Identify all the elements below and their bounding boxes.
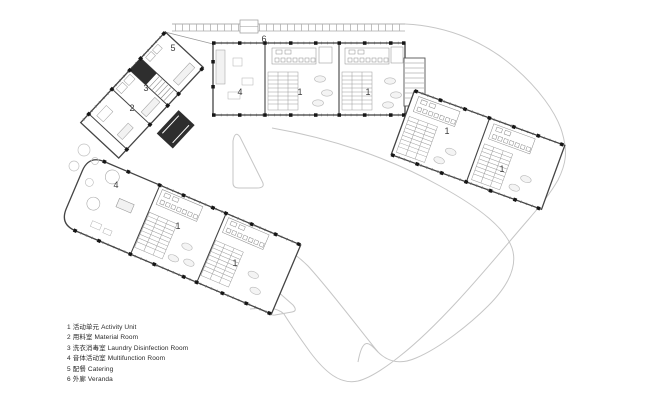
legend-item-material-room: 2用料室Material Room <box>67 333 190 343</box>
legend-en: Veranda <box>88 376 113 383</box>
legend-num: 6 <box>67 376 71 383</box>
room-label-unit-top-2: 1 <box>365 87 370 97</box>
legend-en: Activity Unit <box>101 324 136 331</box>
legend-zh: 用料室 <box>73 334 93 341</box>
room-label-veranda: 6 <box>261 34 266 44</box>
legend-zh: 洗衣消毒室 <box>73 345 106 352</box>
room-label-unit-bottom-2: 1 <box>232 258 237 268</box>
floor-plan-figure: 5 3 2 4 1 1 6 1 1 4 1 1 1活动单元Activity Un… <box>0 0 650 410</box>
legend-en: Laundry Disinfection Room <box>108 345 189 352</box>
room-label-multifunction-top: 4 <box>237 87 242 97</box>
legend-en: Multifunction Room <box>108 355 165 362</box>
wing-bottomleft <box>59 154 301 316</box>
room-label-multifunction-bottom: 4 <box>113 180 118 190</box>
legend-en: Catering <box>88 366 113 373</box>
legend-en: Material Room <box>95 334 139 341</box>
room-label-laundry: 3 <box>143 83 148 93</box>
wing-top <box>211 41 405 117</box>
legend-num: 3 <box>67 345 71 352</box>
legend-item-veranda: 6外廊Veranda <box>67 375 190 385</box>
path-island-west <box>233 134 263 188</box>
legend-item-laundry: 3洗衣消毒室Laundry Disinfection Room <box>67 344 190 354</box>
legend-zh: 音体活动室 <box>73 355 106 362</box>
room-label-unit-right-1: 1 <box>444 126 449 136</box>
legend-item-multifunction: 4音体活动室Multifunction Room <box>67 354 190 364</box>
legend: 1活动单元Activity Unit 2用料室Material Room 3洗衣… <box>67 323 190 385</box>
legend-item-catering: 5配餐Catering <box>67 365 190 375</box>
legend-num: 1 <box>67 324 71 331</box>
room-label-material: 2 <box>129 103 134 113</box>
legend-zh: 外廊 <box>73 376 86 383</box>
legend-zh: 配餐 <box>73 366 86 373</box>
room-label-unit-top-1: 1 <box>297 87 302 97</box>
legend-zh: 活动单元 <box>73 324 99 331</box>
room-label-catering: 5 <box>170 43 175 53</box>
legend-item-activity-unit: 1活动单元Activity Unit <box>67 323 190 333</box>
veranda-canopy <box>172 20 405 33</box>
room-label-unit-right-2: 1 <box>499 164 504 174</box>
wing-right <box>391 89 566 211</box>
legend-num: 4 <box>67 355 71 362</box>
room-label-unit-bottom-1: 1 <box>175 221 180 231</box>
legend-num: 5 <box>67 366 71 373</box>
legend-num: 2 <box>67 334 71 341</box>
